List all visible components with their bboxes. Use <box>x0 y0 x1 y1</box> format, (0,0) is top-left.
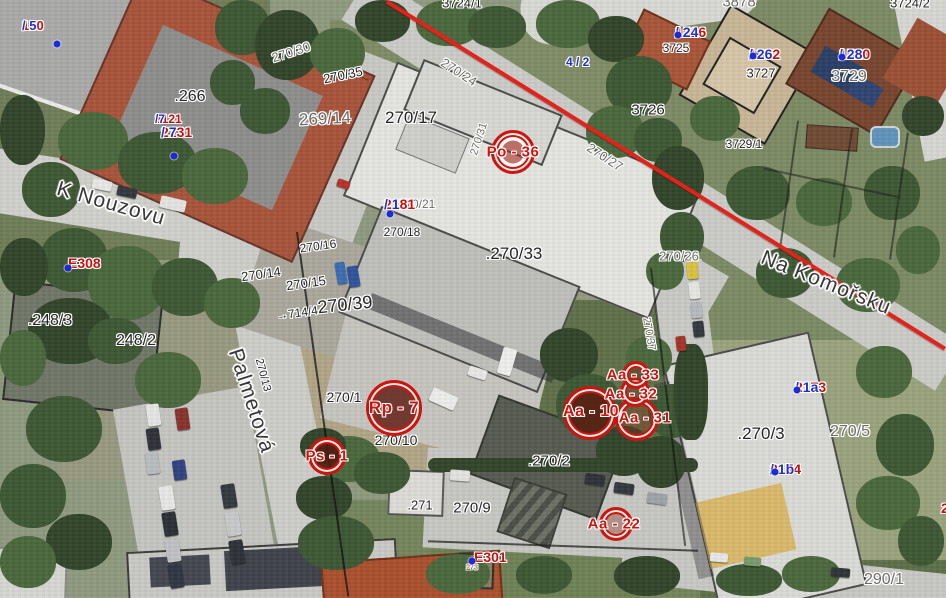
parcel-label-3724-2: 3724/2 <box>890 0 930 11</box>
parcel-definition-point <box>54 41 61 48</box>
parcel-definition-point <box>469 558 476 565</box>
parcel-label-3727: 3727 <box>747 66 776 81</box>
tree <box>864 166 920 220</box>
pool <box>870 126 900 148</box>
parcel-label-270-3: .270/3 <box>737 424 784 444</box>
tree-marker-label-aa-31: Aa - 31 <box>619 410 672 427</box>
tree-marker-label-aa-10: Aa - 10 <box>563 403 619 421</box>
tree <box>0 238 48 296</box>
parcel-definition-point <box>750 53 757 60</box>
tree <box>0 95 45 165</box>
car <box>688 281 701 299</box>
tree <box>468 6 526 48</box>
parcel-label-270-33: .270/33 <box>486 244 543 264</box>
parcel-label-270-2: .270/2 <box>528 453 570 470</box>
car <box>690 301 703 318</box>
tree <box>296 476 352 520</box>
tree <box>896 226 940 274</box>
cadastral-suffix: / 5 <box>22 18 36 33</box>
parcel-label-248-2: 248/2 <box>116 332 156 350</box>
hedge <box>674 344 708 440</box>
car <box>450 469 471 481</box>
parcel-label-290-1: 290/1 <box>864 571 904 589</box>
parcel-label-270-17: 270/17 <box>385 108 437 128</box>
cadastral-suffix: / 7 <box>161 124 177 140</box>
parcel-definition-point <box>171 153 178 160</box>
car <box>172 459 188 481</box>
parcel-label-271: .271 <box>407 498 432 513</box>
cadastral-suffix: / 1 <box>384 196 400 212</box>
tree <box>0 330 46 386</box>
tree <box>182 148 248 204</box>
tree <box>0 536 56 588</box>
parcel-label-266: .266 <box>174 88 205 106</box>
tree <box>652 146 704 210</box>
tree <box>204 278 260 328</box>
tree <box>135 352 201 408</box>
parcel-label-3726: 3726 <box>631 102 664 119</box>
tree-marker-label-aa-33: Aa - 33 <box>607 367 660 384</box>
parcel-definition-point <box>65 265 72 272</box>
tree <box>516 556 572 594</box>
car <box>831 567 851 578</box>
tree <box>210 60 255 105</box>
parcel-label-270-26: 270/26 <box>659 249 699 264</box>
car <box>675 336 687 352</box>
car <box>686 261 699 279</box>
parcel-label-248-3: .248/3 <box>28 312 72 330</box>
tree-marker-label-aa-32: Aa - 32 <box>605 386 658 403</box>
tree-marker-label-aa-22: Aa - 22 <box>588 516 641 533</box>
tree <box>898 516 944 566</box>
parcel-label-270-18: 270/18 <box>384 225 421 239</box>
cadastral-suffix: 4 / 2 <box>566 55 589 69</box>
cadastral-number: E308 <box>68 255 101 271</box>
map-canvas[interactable]: K NouzovuPalmetováNa Komořsku.266269/142… <box>0 0 946 598</box>
tree-marker-label-po-36: Po - 36 <box>487 144 540 161</box>
tree <box>726 166 790 220</box>
tree <box>716 564 782 596</box>
tree <box>690 96 740 141</box>
parcel-label-3729-1: 3729/1 <box>726 137 763 151</box>
parcel-label-270-9: 270/9 <box>453 500 491 517</box>
tree <box>856 346 912 398</box>
parcel-definition-point <box>675 32 682 39</box>
tree <box>26 396 102 462</box>
parcel-definition-point <box>387 211 394 218</box>
cadastral-number: 2 <box>941 500 946 516</box>
parcel-label-3725: 3725 <box>663 41 690 55</box>
parcel-definition-point <box>794 387 801 394</box>
tree-marker-label-ps-1: Ps - 1 <box>305 448 348 465</box>
tree <box>298 516 374 570</box>
tree <box>902 96 944 136</box>
parcel-definition-point <box>772 469 779 476</box>
tree <box>0 464 66 528</box>
cadastral-number: E301 <box>474 549 507 565</box>
car <box>692 320 705 337</box>
parcel-label-3729: 3729 <box>831 68 867 86</box>
parcel-label-273: 273 <box>466 565 478 572</box>
parcel-label-3724-1: 3724/1 <box>442 0 482 11</box>
parcel-label-270-5: 270/5 <box>830 423 870 441</box>
car <box>744 556 762 566</box>
tree <box>614 556 680 596</box>
car <box>710 552 729 563</box>
parcel-label-3878: 3878 <box>722 0 755 11</box>
tree-marker-label-rp-7: Rp - 7 <box>369 398 419 418</box>
tree <box>876 414 934 476</box>
tree <box>355 0 410 42</box>
parcel-definition-point <box>839 54 846 61</box>
parcel-label-270-1: 270/1 <box>326 389 361 405</box>
tree <box>354 452 410 494</box>
parcel-label-269-14: 269/14 <box>299 108 352 131</box>
